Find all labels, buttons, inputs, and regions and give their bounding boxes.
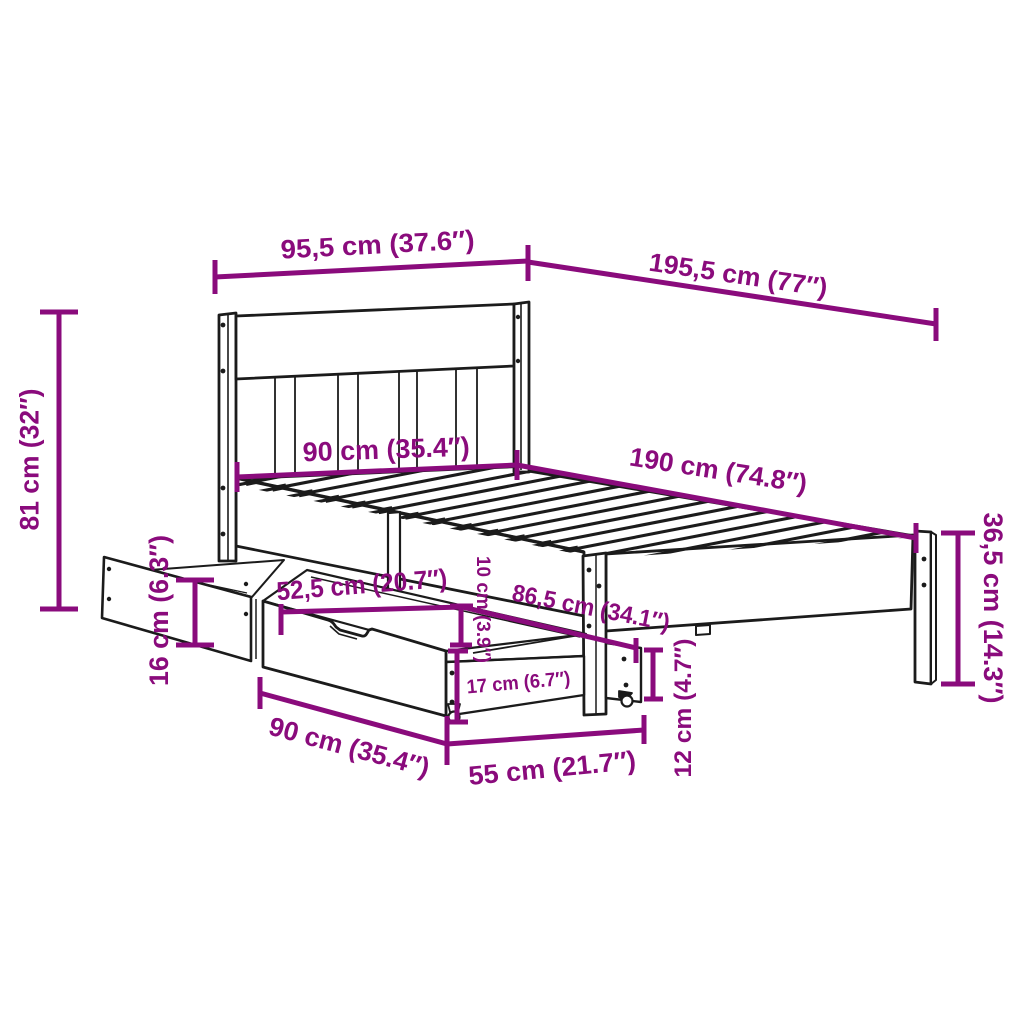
svg-text:12 cm (4.7″): 12 cm (4.7″) (670, 639, 697, 778)
svg-text:90 cm (35.4″): 90 cm (35.4″) (302, 432, 470, 468)
svg-text:16 cm (6.3″): 16 cm (6.3″) (144, 535, 174, 686)
svg-text:81 cm (32″): 81 cm (32″) (15, 389, 45, 531)
svg-text:36,5 cm (14.3″): 36,5 cm (14.3″) (978, 513, 1008, 704)
